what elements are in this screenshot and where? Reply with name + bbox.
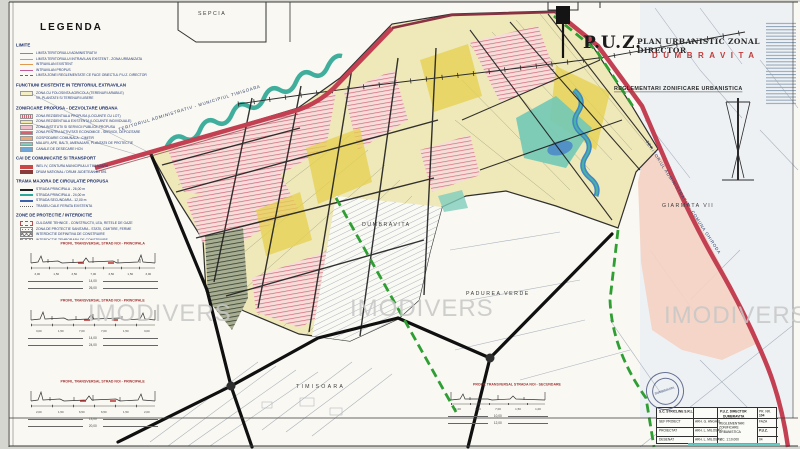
legend-row-label: INTRAVILAN PROPUS bbox=[36, 69, 71, 72]
legend-ln-blackthick bbox=[20, 189, 33, 191]
teal-highlight-line bbox=[688, 443, 780, 446]
phase-value: P.U.Z. bbox=[759, 429, 768, 433]
legend-pat-cross bbox=[20, 232, 33, 237]
watermark: IMODIVERS bbox=[664, 302, 800, 330]
legend-title: LEGENDA bbox=[40, 22, 152, 33]
label-dumbravita: DUMBRAVITA bbox=[362, 222, 411, 227]
legend-row-label: TRASEU CALE FERATA EXISTENTA bbox=[36, 205, 92, 208]
legend-section: LIMITELIMITA TERITORIULUI ADMINISTRATIVL… bbox=[16, 42, 152, 79]
legend-row-label: CANALE DE DESECARE HCN bbox=[36, 148, 83, 151]
legend-row-label: ZONA REZIDENTIALA EXISTENTA (LOCUINTE IN… bbox=[36, 120, 131, 123]
profile-total: 24,00 bbox=[28, 342, 158, 349]
round-stamp-inner: DUMBRAVITA bbox=[648, 374, 682, 408]
road-node bbox=[227, 382, 236, 391]
legend-ln-gray2 bbox=[20, 206, 33, 207]
dimension-value: 3,50 bbox=[71, 273, 79, 276]
role-name: ARH. L. MILOSAV bbox=[695, 429, 721, 433]
profile-mid-total: 13,00 bbox=[28, 416, 158, 423]
legend-row: CANALE DE DESECARE HCN bbox=[20, 147, 152, 153]
legend-section: FUNCTIUNI EXISTENTE IN TERITORIUL EXTRAV… bbox=[16, 82, 152, 102]
dimension-value: 1,50 bbox=[121, 411, 130, 414]
legend-sw-pink bbox=[20, 125, 33, 130]
dimension-value: 7,00 bbox=[99, 330, 108, 333]
dimension-value: 1,50 bbox=[474, 408, 482, 411]
locality-title: DUMBRAVITA bbox=[652, 51, 760, 60]
legend-section-heading: FUNCTIUNI EXISTENTE IN TERITORIUL EXTRAV… bbox=[16, 83, 100, 87]
dimension-value: 2,00 bbox=[34, 411, 43, 414]
legend-sw-orange bbox=[20, 136, 33, 141]
project-number: 104 bbox=[759, 414, 764, 418]
label-sepcia: SEPCIA bbox=[198, 11, 226, 16]
legend-row-label: STRADA SECUNDARA - 12,00 m bbox=[36, 199, 86, 202]
dimension-value: 3,00 bbox=[33, 273, 41, 276]
project-name: P.U.Z. DIRECTOR bbox=[720, 410, 747, 414]
legend-row-label: CULOARE TEHNICE - CONSTRUCTII, LEA, RETE… bbox=[36, 222, 133, 225]
legend-row-label: ZONA CU FOLOSINTA AGRICOLA (TERENURI ARA… bbox=[36, 92, 124, 95]
dimension-value: 6,50 bbox=[99, 411, 108, 414]
legend-section-heading: CAI DE COMUNICATIE SI TRANSPORT bbox=[16, 156, 100, 160]
legend-section: TRAMA MAJORA DE CIRCULATIE PROPUSASTRADA… bbox=[16, 178, 152, 209]
legend-row-label: LIMITA TERITORIULUI ADMINISTRATIV bbox=[36, 52, 97, 55]
project-number-label: PR. NR. bbox=[759, 410, 771, 414]
dimension-value: 7,00 bbox=[89, 273, 97, 276]
legend-row-label: DRUM NATIONAL / DRUM JUDETEAN DJ 691 bbox=[36, 171, 107, 174]
legend-pat-dash bbox=[20, 221, 33, 226]
dimension-value: 1,00 bbox=[454, 408, 462, 411]
legend-row: TRASEU CALE FERATA EXISTENTA bbox=[20, 204, 152, 210]
street-profile-4: PROFIL TRANSVERSAL STRADA NOI - SECUNDAR… bbox=[448, 383, 548, 427]
dimension-value: 2,00 bbox=[143, 411, 152, 414]
stamp-label: DUMBRAVITA bbox=[655, 386, 675, 395]
profile-mid-total: 14,00 bbox=[28, 335, 158, 342]
legend-row-label: INTERDICTIE TEMPORARA DE CONSTRUIRE bbox=[36, 239, 108, 240]
role-label: DESENAT bbox=[659, 438, 674, 442]
road-node bbox=[486, 354, 495, 363]
legend-ln-blue bbox=[20, 200, 33, 202]
dimension-value: 1,50 bbox=[56, 330, 65, 333]
dimension-value: 1,50 bbox=[514, 408, 522, 411]
legend-panel: LEGENDA LIMITELIMITA TERITORIULUI ADMINI… bbox=[16, 22, 152, 240]
role-label: SEF PROIECT bbox=[659, 420, 681, 424]
sheet-number: 04 bbox=[759, 438, 763, 442]
role-name: ARH. G. ANGHEL bbox=[695, 420, 721, 424]
legend-sw-yellow bbox=[20, 120, 33, 125]
legend-sections: LIMITELIMITA TERITORIULUI ADMINISTRATIVL… bbox=[16, 42, 152, 240]
legend-ln-reddash bbox=[20, 75, 33, 76]
legend-row-label: INTERDICTIE DEFINITIVA DE CONSTRUIRE bbox=[36, 233, 105, 236]
legend-ln-orange bbox=[20, 64, 33, 65]
role-name: ARH. L. MILOSAV bbox=[695, 438, 721, 442]
legend-ln-teal bbox=[20, 194, 33, 196]
legend-section: ZONE DE PROTECTIE / INTERDICTIECULOARE T… bbox=[16, 212, 152, 240]
legend-row-label: LIMITA ZONEI REGLEMENTATE CE FACE OBIECT… bbox=[36, 74, 147, 77]
legend-row: INTERDICTIE TEMPORARA DE CONSTRUIRE bbox=[20, 238, 152, 241]
legend-row-label: ZONA PENTRU ACTIVITATI ECONOMICE - SERVI… bbox=[36, 131, 140, 134]
legend-ln-magenta bbox=[20, 70, 33, 71]
profile-dimensions: 3,001,503,507,003,501,503,00 bbox=[28, 271, 158, 278]
profile-total: 12,00 bbox=[448, 420, 548, 427]
profile-drawing bbox=[448, 388, 548, 406]
legend-section-heading: ZONE DE PROTECTIE / INTERDICTIE bbox=[16, 213, 100, 217]
project-locality: DUMBRAVITA bbox=[723, 415, 744, 419]
legend-ln-gray bbox=[20, 53, 33, 54]
profile-total: 26,00 bbox=[28, 285, 158, 292]
profile-mid-total: 10,00 bbox=[448, 413, 548, 420]
legend-row-label: ZONA DE PROTECTIE SANITARA - STATII, CIM… bbox=[36, 228, 131, 231]
company-name: S.C. STRICLINE S.R.L. bbox=[659, 410, 693, 414]
legend-row: LIMITA ZONEI REGLEMENTATE CE FACE OBIECT… bbox=[20, 73, 152, 79]
hatch-band-icon bbox=[766, 22, 796, 106]
profile-total: 20,00 bbox=[28, 423, 158, 430]
street-profile-3: PROFIL TRANSVERSAL STRAD NOI - PRINCIPAL… bbox=[28, 380, 158, 430]
legend-section-heading: TRAMA MAJORA DE CIRCULATIE PROPUSA bbox=[16, 179, 100, 183]
legend-row-label: STRADA PRINCIPALA - 26,00 m bbox=[36, 188, 85, 191]
legend-section-heading: LIMITE bbox=[16, 43, 100, 47]
legend-row-label: GOSPODARIE COMUNALA - CIMITIR bbox=[36, 137, 94, 140]
dimension-value: 6,50 bbox=[78, 411, 87, 414]
drawing-scale: SC. 1:10.000 bbox=[720, 438, 739, 442]
scanned-zoning-plan: LEGENDA LIMITELIMITA TERITORIULUI ADMINI… bbox=[0, 0, 800, 449]
legend-row-label: STRADA PRINCIPALA - 24,00 m bbox=[36, 194, 85, 197]
legend-row-label: INEL IV, CENTURA MUNICIPIULUI TIMISOARA bbox=[36, 165, 108, 168]
dimension-value: 3,00 bbox=[145, 273, 153, 276]
watermark: IMODIVERS bbox=[350, 295, 494, 323]
legend-row: LIMITA TERITORIULUI INTRAVILAN EXISTENT … bbox=[20, 57, 152, 63]
legend-pat-dots bbox=[20, 227, 33, 232]
profile-dimensions: 2,001,506,506,501,502,00 bbox=[28, 409, 158, 416]
legend-pat-zig bbox=[20, 238, 33, 240]
legend-row-label: MALURI, APE, BALTI, AMENAJARI, PLANTATII… bbox=[36, 142, 133, 145]
street-profile-1: PROFIL TRANSVERSAL STRAD NOI - PRINCIPAL… bbox=[28, 242, 158, 292]
legend-row-label: ZONA REZIDENTIALA PROPUSA (LOCUINTE CU L… bbox=[36, 115, 121, 118]
phase-label: FAZA bbox=[759, 420, 767, 424]
legend-sw-hatchpink bbox=[20, 114, 33, 119]
legend-sw-red2 bbox=[20, 165, 33, 169]
legend-sw-red bbox=[20, 131, 33, 136]
dimension-value: 1,50 bbox=[126, 273, 134, 276]
sheet-subtitle: REGLEMENTARI ZONIFICARE URBANISTICA bbox=[614, 85, 743, 92]
dimension-value: 1,50 bbox=[121, 330, 130, 333]
legend-row-label: LIMITA TERITORIULUI INTRAVILAN EXISTENT … bbox=[36, 58, 142, 61]
profile-title: PROFIL TRANSVERSAL STRADA NOI - SECUNDAR… bbox=[473, 383, 523, 386]
legend-section-heading: ZONIFICARE PROPUSA - DEZVOLTARE URBANA bbox=[16, 106, 100, 110]
profile-drawing bbox=[28, 385, 158, 409]
puz-title: P.U.Z. bbox=[583, 33, 642, 53]
legend-row-label: INTRAVILAN EXISTENT bbox=[36, 63, 73, 66]
profile-dimensions: 1,001,507,001,501,00 bbox=[448, 406, 548, 413]
dimension-value: 3,50 bbox=[108, 273, 116, 276]
legend-row-label: ZONA INSTITUTII SI SERVICII PUBLICE PROP… bbox=[36, 126, 115, 129]
profile-title: PROFIL TRANSVERSAL STRAD NOI - PRINCIPAL… bbox=[61, 242, 126, 245]
legend-sw-teal bbox=[20, 142, 33, 147]
role-label: PROIECTAT bbox=[659, 429, 677, 433]
legend-row-label: VII, PLANTATII SI TERENURI LIBERE bbox=[36, 97, 94, 100]
title-block: S.C. STRICLINE S.R.L. SEF PROIECT PROIEC… bbox=[656, 407, 777, 444]
dimension-value: 3,00 bbox=[143, 330, 152, 333]
dimension-value: 1,00 bbox=[534, 408, 542, 411]
profile-drawing bbox=[28, 247, 158, 271]
legend-row: VII, PLANTATII SI TERENURI LIBERE bbox=[20, 96, 152, 102]
legend-row: DRUM NATIONAL / DRUM JUDETEAN DJ 691 bbox=[20, 170, 152, 176]
dimension-value: 7,00 bbox=[78, 330, 87, 333]
dimension-value: 1,50 bbox=[52, 273, 60, 276]
legend-section: CAI DE COMUNICATIE SI TRANSPORTINEL IV, … bbox=[16, 155, 152, 175]
dimension-value: 1,50 bbox=[56, 411, 65, 414]
profile-mid-total: 14,00 bbox=[28, 278, 158, 285]
legend-sw-blue bbox=[20, 147, 33, 152]
drawing-name: REGLEMENTARI ZONIFICARE URBANISTICA bbox=[719, 422, 757, 435]
legend-ln-pink bbox=[20, 59, 33, 60]
profile-dimensions: 3,001,507,007,001,503,00 bbox=[28, 328, 158, 335]
watermark: IMODIVERS bbox=[88, 300, 232, 328]
dimension-value: 3,00 bbox=[34, 330, 43, 333]
black-mark bbox=[556, 6, 570, 24]
legend-sw-yellowpale bbox=[20, 91, 33, 96]
profile-title: PROFIL TRANSVERSAL STRAD NOI - PRINCIPAL… bbox=[61, 380, 126, 383]
legend-sw-dkred bbox=[20, 170, 33, 174]
label-timisoara: TIMISOARA bbox=[296, 384, 345, 389]
dimension-value: 7,00 bbox=[494, 408, 502, 411]
